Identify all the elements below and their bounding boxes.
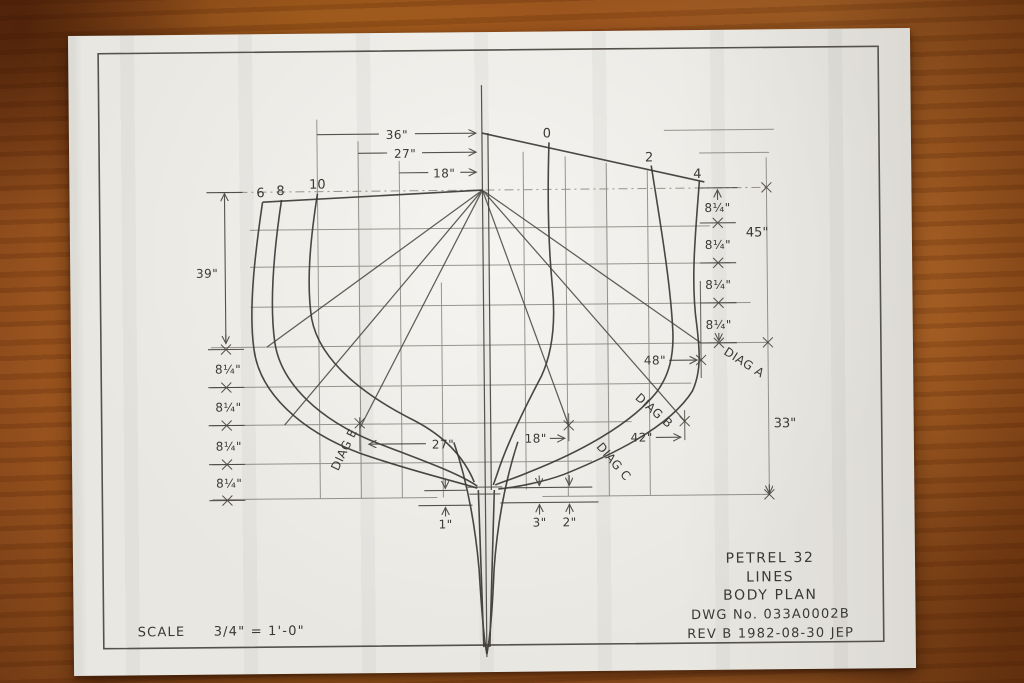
dim-48: 48" <box>644 353 666 367</box>
dim-8q-left-4: 8¼" <box>216 476 242 490</box>
dim-33: 33" <box>774 416 797 431</box>
title-block: PETREL 32 LINES BODY PLAN DWG No. 033A00… <box>686 550 854 643</box>
dim-1: 1" <box>439 517 453 531</box>
dim-8q-right-4: 8¼" <box>706 318 732 332</box>
dim-18: 18" <box>433 166 455 180</box>
dim-27: 27" <box>394 147 416 161</box>
dim-8q-right-3: 8¼" <box>705 278 731 292</box>
scale-value: 3/4" = 1'-0" <box>214 624 305 640</box>
dim-8q-right-2: 8¼" <box>705 238 731 252</box>
dim-42: 42" <box>630 430 652 444</box>
scale-note: SCALE 3/4" = 1'-0" <box>138 624 305 641</box>
title-product: PETREL 32 <box>725 550 814 567</box>
desk-photo: 36" 27" 18" 39" 8¼" 8¼" 8¼" 8¼" <box>0 0 1024 683</box>
body-plan-drawing: 36" 27" 18" 39" 8¼" 8¼" 8¼" 8¼" <box>68 28 916 676</box>
diag-c-label: DIAG C <box>594 440 634 484</box>
title-rev: REV B 1982-08-30 JEP <box>687 626 854 643</box>
station-label-10: 10 <box>309 178 326 193</box>
left-dim-column <box>206 192 245 505</box>
scale-label: SCALE <box>138 625 186 640</box>
paper-sheet: 36" 27" 18" 39" 8¼" 8¼" 8¼" 8¼" <box>68 28 916 676</box>
title-sheet: LINES <box>746 569 794 585</box>
dim-45: 45" <box>746 225 769 240</box>
dim-8q-left-2: 8¼" <box>215 400 241 414</box>
dim-39: 39" <box>196 267 218 281</box>
station-label-0: 0 <box>543 126 551 141</box>
dim-3: 3" <box>532 515 546 529</box>
diag-a-label: DIAG A <box>721 344 767 380</box>
dim-2: 2" <box>562 515 576 529</box>
station-label-8: 8 <box>276 184 284 199</box>
title-dwg-no: DWG No. 033A0002B <box>691 607 850 624</box>
dim-18b: 18" <box>524 431 546 445</box>
dim-8q-right-1: 8¼" <box>704 201 730 215</box>
dim-8q-left-1: 8¼" <box>215 362 241 376</box>
dim-27b: 27" <box>432 437 454 451</box>
station-label-4: 4 <box>693 167 701 182</box>
dim-36: 36" <box>386 128 408 142</box>
station-label-6: 6 <box>256 186 264 201</box>
diag-e-label: DIAG E <box>328 427 360 473</box>
title-view: BODY PLAN <box>723 587 818 604</box>
station-label-2: 2 <box>645 150 653 165</box>
dim-8q-left-3: 8¼" <box>216 439 242 453</box>
waterline-buttock-grid <box>209 115 778 499</box>
